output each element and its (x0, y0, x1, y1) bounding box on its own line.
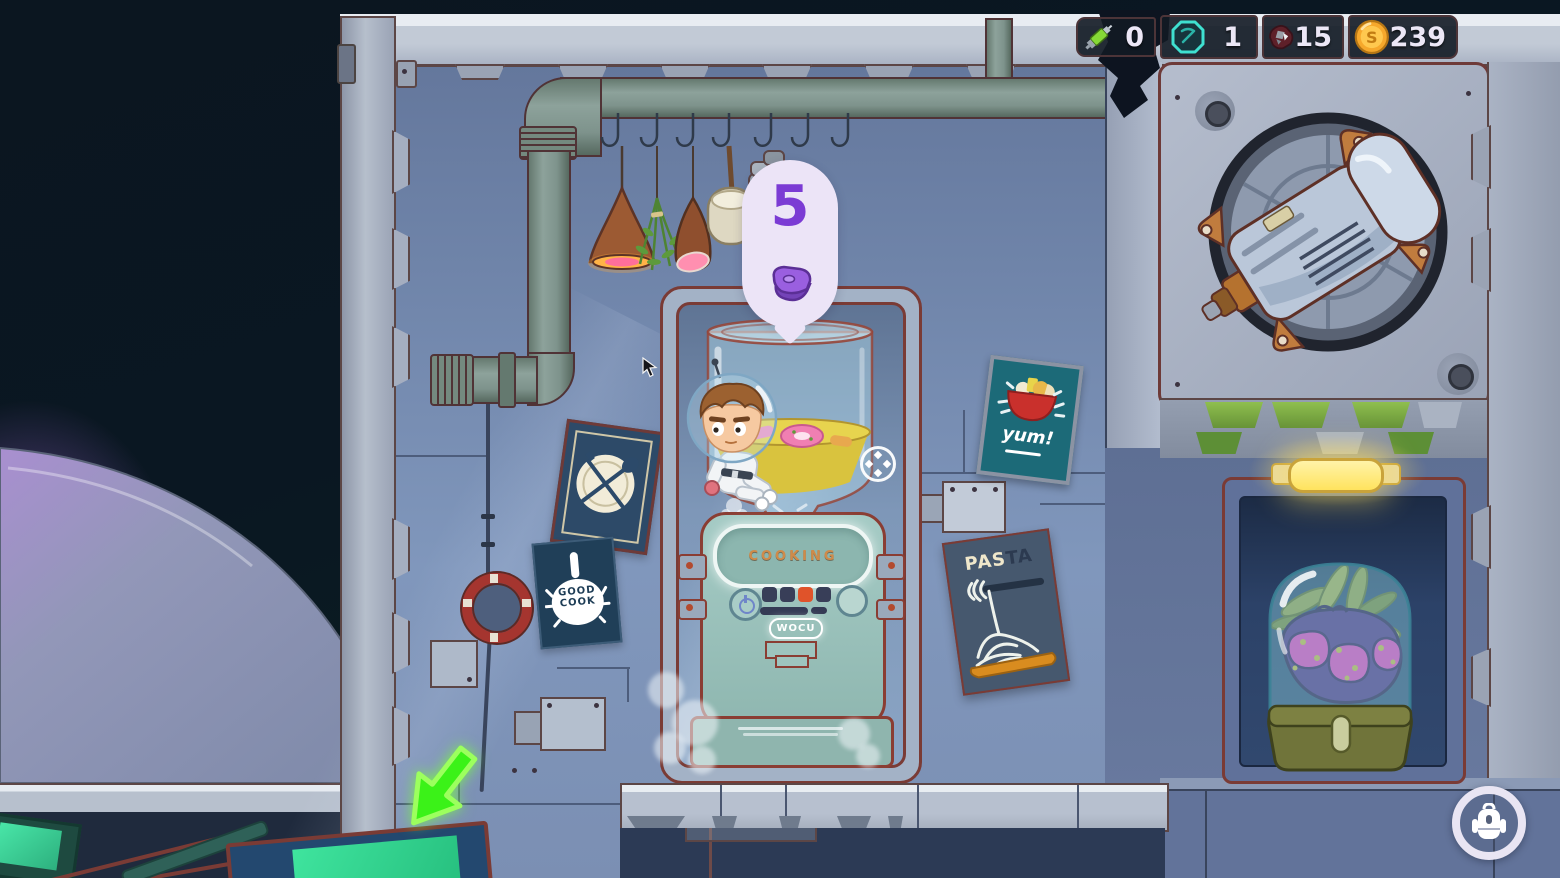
machine-key-4 (816, 587, 831, 602)
steam-puff (654, 732, 686, 764)
wall-seam (392, 455, 488, 457)
kitchen-floor (620, 783, 1169, 832)
gray-vent-bracket (1418, 402, 1462, 428)
backpack-button[interactable] (1452, 786, 1526, 860)
hanging-utensils (560, 100, 1120, 300)
beam-bracket (1471, 125, 1491, 189)
wall-seam (1040, 503, 1105, 505)
floor-bracket-outline (685, 828, 817, 842)
tutorial-arrow (396, 740, 482, 844)
wall-rivet (532, 768, 537, 773)
meteor-ore-icon (1268, 18, 1294, 56)
power-button (729, 588, 762, 621)
ore-count: 15 (1294, 22, 1332, 53)
beam-bracket (392, 518, 410, 580)
wall-rivet (512, 768, 517, 773)
pickaxe-badge-icon (1170, 19, 1206, 55)
hud-resource-gadget[interactable]: 1 (1160, 15, 1258, 59)
machine-slider-small (811, 607, 827, 614)
green-vent (1352, 402, 1410, 428)
spaghetti-fork-icon (953, 569, 1063, 685)
alien-plant-terrarium[interactable] (1255, 550, 1425, 772)
coin-symbol: S (1366, 28, 1378, 47)
machine-hinge (876, 554, 905, 580)
backpack-icon (1472, 803, 1506, 843)
green-vent (1205, 402, 1263, 428)
far-right-beam (1487, 62, 1560, 778)
left-wall-beam (340, 16, 396, 836)
utensils-poster (550, 419, 664, 555)
coin-count: 239 (1390, 22, 1446, 53)
beam-top-tab (337, 44, 356, 84)
beam-bracket (1471, 648, 1491, 707)
steam-puff (648, 672, 684, 708)
machine-hinge (678, 599, 707, 620)
alcove-light (1288, 458, 1384, 493)
face (701, 384, 764, 452)
machine-slider (760, 607, 808, 615)
wall-cable (486, 402, 490, 576)
pasta-title-dark: TA (1004, 545, 1033, 570)
machine-dial (836, 585, 868, 617)
mouse-cursor (642, 357, 658, 379)
red-ring-porthole (462, 573, 532, 643)
game-scene: GOOD COOK yum! PASTA (0, 0, 1560, 878)
good-cook-poster: GOOD COOK (532, 537, 623, 650)
order-bubble[interactable]: 5 (742, 160, 838, 328)
pipe-hanger (985, 18, 1013, 86)
steam-puff (688, 746, 716, 774)
wall-panel-box (430, 640, 478, 688)
serum-count: 0 (1125, 22, 1144, 53)
cooking-machine[interactable]: COOKING WOCU (700, 512, 886, 728)
cable-clamp (481, 514, 495, 519)
gadget-count: 1 (1223, 22, 1242, 53)
cable-clamp (481, 542, 495, 547)
machine-key-2 (780, 587, 795, 602)
hanging-ham (675, 146, 710, 274)
wall-seam (557, 667, 630, 669)
machine-chute-small (775, 655, 809, 668)
beam-bracket (1471, 505, 1491, 569)
hud-resource-ore[interactable]: 15 (1262, 15, 1344, 59)
pipe-flange (498, 352, 516, 408)
machine-hinge (876, 599, 905, 620)
machine-hinge (678, 554, 707, 580)
astronaut-character (676, 356, 800, 524)
beam-bracket (392, 228, 410, 290)
ceiling-bracket (455, 64, 505, 80)
pasta-title-light: PAS (963, 549, 1007, 576)
yum-poster: yum! (976, 355, 1084, 486)
wall-seam (963, 410, 965, 472)
busy-spinner-icon (860, 446, 896, 482)
beam-bracket (392, 326, 410, 388)
syringe-icon (1082, 20, 1116, 54)
purple-steak-icon (766, 262, 816, 306)
pipe-coupling-low (430, 354, 474, 406)
fork-spoon-icon (569, 444, 642, 524)
plant-pot (1269, 706, 1412, 770)
green-vent (1272, 402, 1330, 428)
steam-puff (856, 744, 880, 768)
beam-bracket (392, 612, 410, 674)
wall-seam (627, 667, 629, 702)
machine-brand-text: WOCU (777, 623, 816, 634)
hud-resource-serum[interactable]: 0 (1076, 17, 1156, 57)
engine-motor (1180, 92, 1472, 382)
panel-screw (1175, 382, 1180, 387)
order-quantity: 5 (742, 174, 838, 239)
hud-resource-coins[interactable]: S 239 (1348, 15, 1458, 59)
machine-display: COOKING (713, 524, 873, 588)
beam-screw-plate (396, 60, 417, 88)
beam-bracket (392, 130, 410, 194)
machine-key-1 (762, 587, 777, 602)
outlet-box (942, 481, 1006, 533)
machine-key-3 (798, 587, 813, 602)
beam-bracket (1471, 228, 1491, 292)
junction-box (540, 697, 606, 751)
machine-status-text: COOKING (748, 549, 837, 564)
pasta-poster: PASTA (942, 528, 1070, 696)
monitor-small (0, 812, 82, 878)
machine-brand-pill: WOCU (769, 618, 823, 639)
green-vent-lower (1196, 432, 1242, 454)
coin-icon: S (1354, 17, 1390, 57)
